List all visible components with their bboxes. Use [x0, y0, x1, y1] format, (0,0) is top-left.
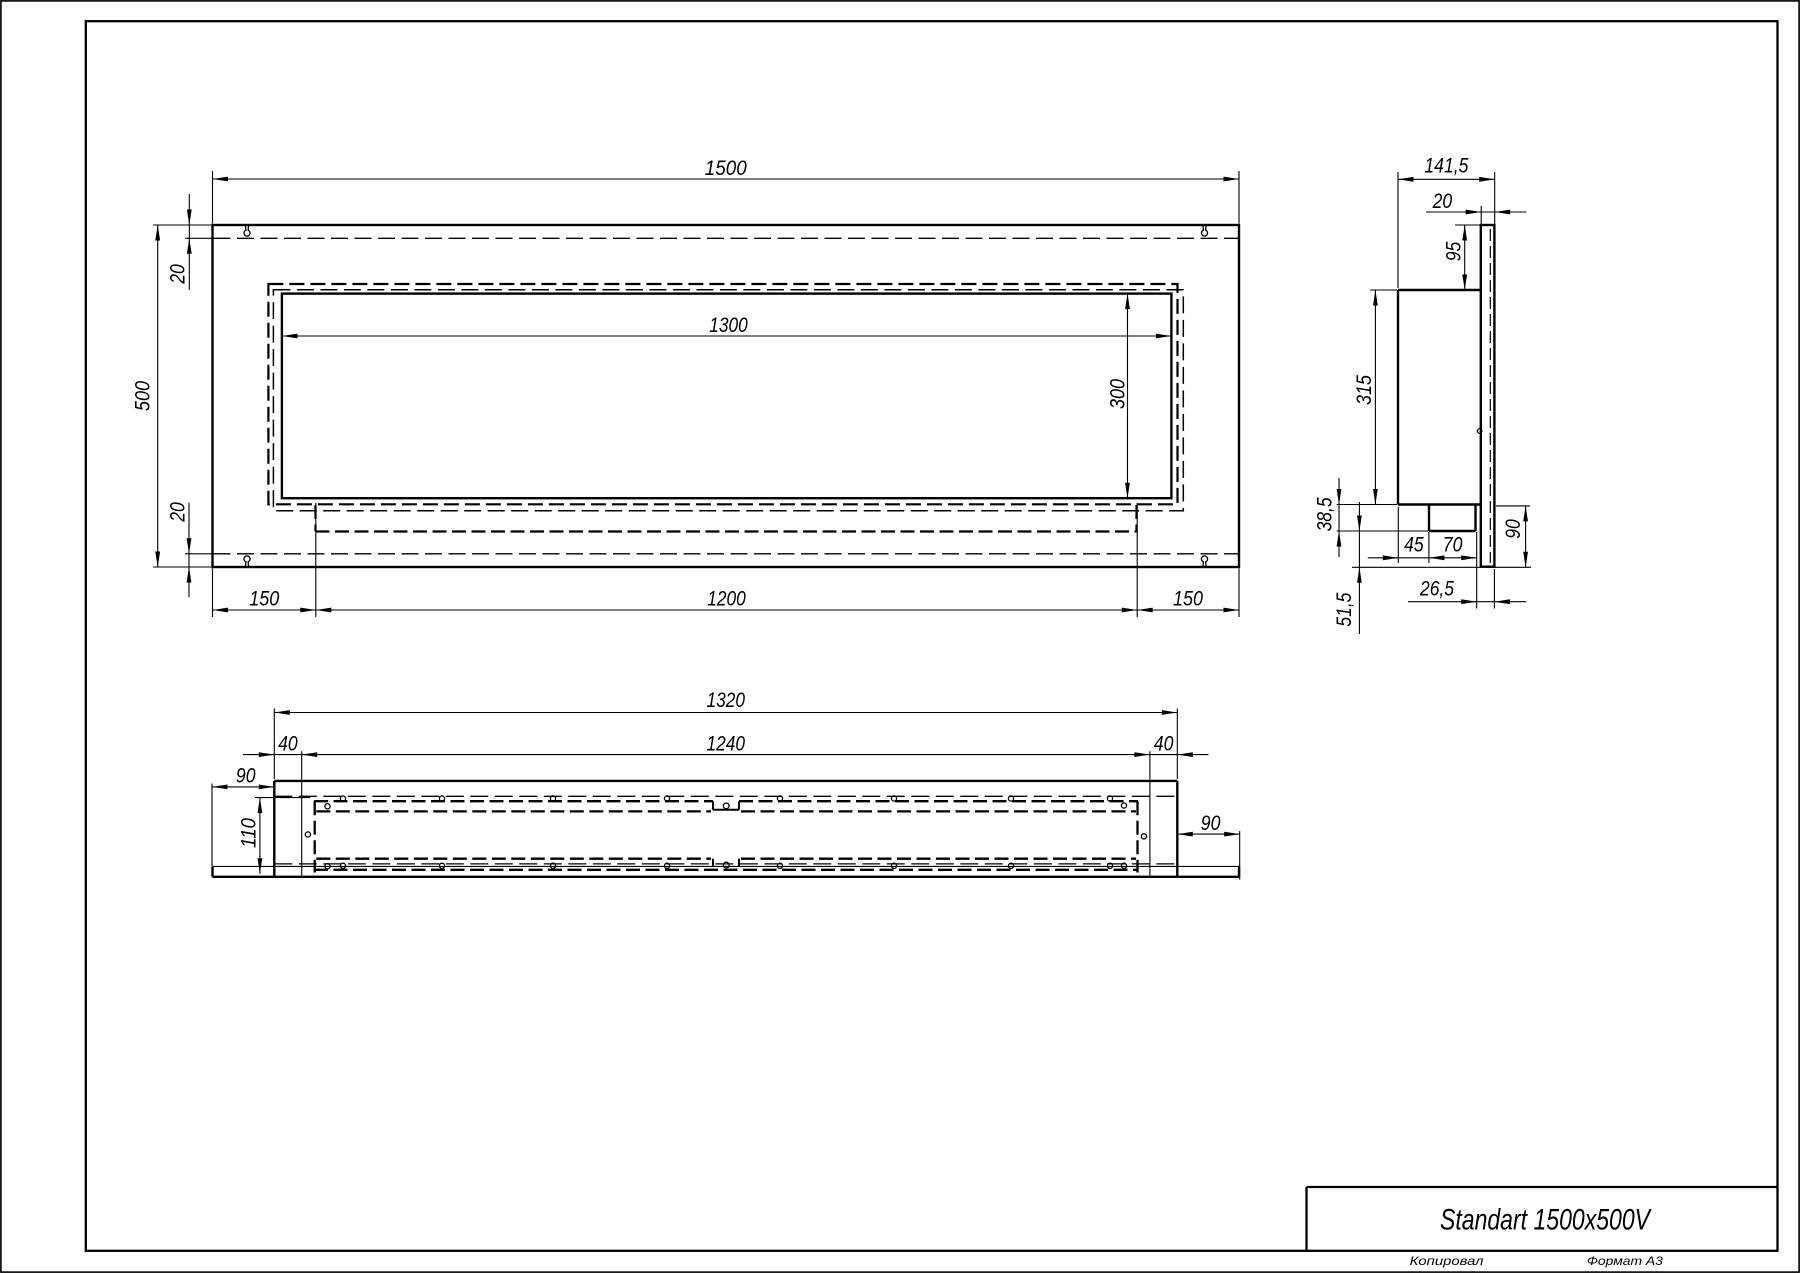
svg-text:90: 90: [1501, 519, 1525, 539]
svg-text:1500: 1500: [705, 156, 747, 180]
svg-text:1240: 1240: [707, 732, 746, 756]
svg-text:45: 45: [1404, 533, 1424, 557]
svg-text:1200: 1200: [707, 587, 746, 611]
svg-text:1300: 1300: [709, 313, 748, 337]
svg-text:90: 90: [1201, 811, 1221, 835]
svg-text:150: 150: [249, 587, 279, 611]
svg-text:110: 110: [236, 818, 260, 848]
svg-text:40: 40: [278, 732, 298, 756]
svg-text:90: 90: [236, 764, 256, 788]
svg-text:26,5: 26,5: [1419, 577, 1455, 601]
svg-text:141,5: 141,5: [1424, 154, 1469, 178]
svg-text:20: 20: [166, 502, 190, 522]
svg-text:Формат А3: Формат А3: [1587, 1256, 1664, 1268]
svg-text:1320: 1320: [707, 688, 746, 712]
svg-text:70: 70: [1443, 533, 1463, 557]
svg-text:300: 300: [1106, 379, 1130, 409]
svg-text:Копировал: Копировал: [1410, 1256, 1485, 1268]
svg-text:38,5: 38,5: [1313, 497, 1337, 532]
svg-text:20: 20: [166, 264, 190, 284]
svg-text:500: 500: [131, 381, 155, 411]
svg-text:20: 20: [1432, 189, 1452, 213]
svg-text:51,5: 51,5: [1332, 592, 1356, 627]
svg-text:95: 95: [1442, 241, 1466, 261]
svg-text:315: 315: [1352, 374, 1376, 405]
svg-text:Standart 1500x500V: Standart 1500x500V: [1440, 1204, 1652, 1237]
svg-text:40: 40: [1154, 732, 1174, 756]
svg-text:150: 150: [1173, 587, 1203, 611]
